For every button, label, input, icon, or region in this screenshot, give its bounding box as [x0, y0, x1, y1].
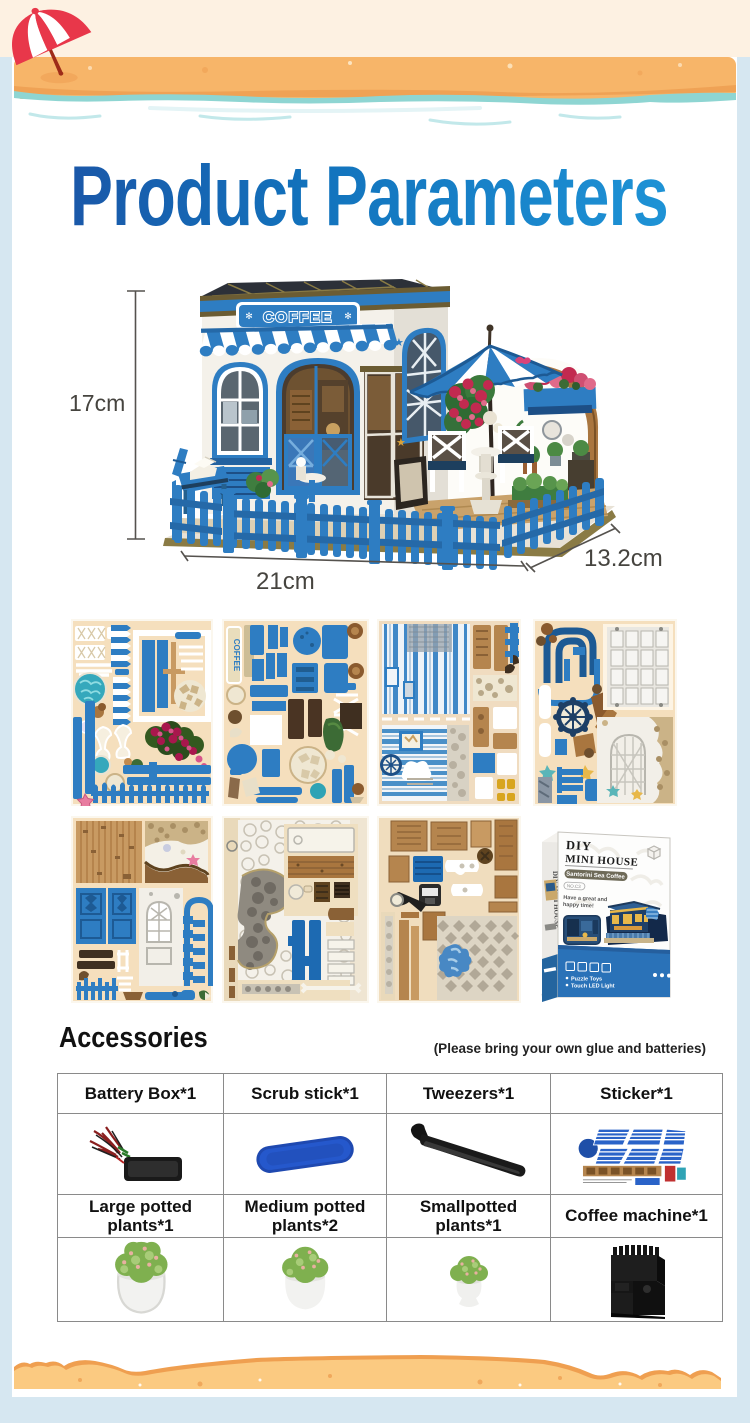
svg-text:COFFEE: COFFEE: [263, 309, 333, 326]
svg-text:★: ★: [394, 337, 404, 349]
svg-text:DIY: DIY: [566, 838, 593, 853]
svg-text:✻: ✻: [245, 311, 253, 321]
svg-text:13.2cm: 13.2cm: [584, 545, 663, 572]
svg-text:17cm: 17cm: [69, 390, 125, 416]
svg-text:Puzzle Toys: Puzzle Toys: [571, 977, 602, 983]
svg-text:NO.C3: NO.C3: [567, 883, 581, 889]
svg-text:COFFEE: COFFEE: [232, 639, 241, 672]
svg-text:Touch LED Light: Touch LED Light: [571, 984, 615, 990]
svg-text:✻: ✻: [344, 311, 352, 321]
svg-text:21cm: 21cm: [256, 568, 315, 595]
svg-text:★: ★: [396, 437, 406, 449]
